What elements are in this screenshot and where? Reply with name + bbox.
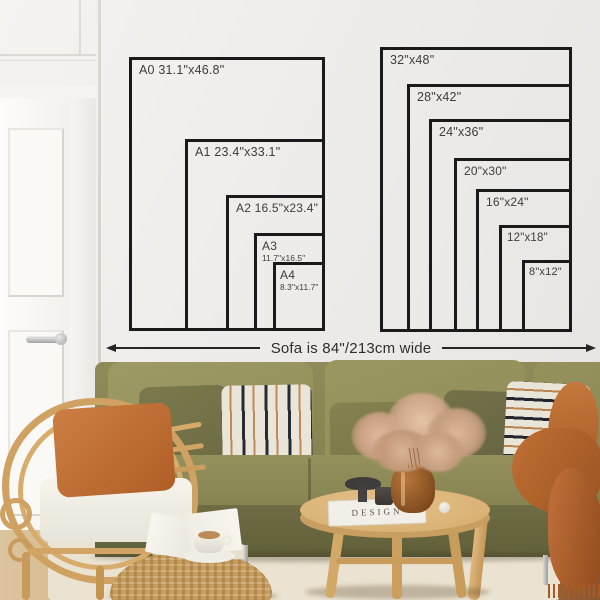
pillow-rust	[52, 402, 176, 498]
size-label-28x42: 28"x42"	[417, 91, 461, 104]
book-spine-title: DESIGN	[351, 506, 402, 518]
size-sublabel-a4: 8.3"x11.7"	[280, 283, 318, 292]
size-label-a2: A2 16.5"x23.4"	[236, 202, 318, 215]
teacup-handle	[222, 535, 232, 545]
size-label-a1: A1 23.4"x33.1"	[195, 146, 280, 159]
table-crossbar	[336, 558, 460, 564]
size-label-32x48: 32"x48"	[390, 54, 434, 67]
arrow-line-right	[442, 347, 586, 349]
teacup-coffee	[198, 531, 220, 539]
arrow-left-icon	[106, 344, 116, 352]
chair-leg	[22, 552, 30, 600]
wall-molding-line2	[0, 60, 96, 61]
bowl-pedestal-stem	[358, 487, 367, 502]
size-label-a4: A48.3"x11.7"	[280, 269, 318, 291]
size-label-a3: A311.7"x16.5"	[262, 240, 305, 262]
flower-stems	[408, 448, 420, 468]
size-box-8x12: 8"x12"	[522, 260, 572, 332]
vase-highlight	[401, 472, 405, 506]
size-label-12x18: 12"x18"	[507, 232, 548, 244]
size-label-8x12: 8"x12"	[529, 267, 562, 279]
size-label-a0: A0 31.1"x46.8"	[139, 64, 224, 77]
size-label-20x30: 20"x30"	[464, 165, 507, 178]
wall-molding-vert	[79, 0, 81, 55]
size-label-16x24: 16"x24"	[486, 196, 529, 209]
table-leg-center	[392, 535, 402, 599]
size-box-a4: A48.3"x11.7"	[273, 262, 325, 331]
chair-leg	[96, 566, 104, 600]
door-handle-rosette	[55, 333, 67, 345]
throw-blanket-drape	[548, 468, 600, 590]
throw-blanket-fringe	[548, 584, 600, 598]
decor-sphere	[439, 502, 450, 513]
arrow-right-icon	[586, 344, 596, 352]
sofa-leg-right	[543, 555, 548, 585]
sofa-width-annotation: Sofa is 84"/213cm wide	[106, 337, 596, 359]
chair-spiral	[0, 498, 32, 530]
arrow-line-left	[116, 347, 260, 349]
amber-vase	[391, 465, 435, 513]
wall-molding-line	[0, 54, 96, 56]
pillow-striped-center	[221, 384, 312, 466]
size-label-24x36: 24"x36"	[439, 126, 483, 139]
scene: A0 31.1"x46.8" A1 23.4"x33.1" A2 16.5"x2…	[0, 0, 600, 600]
door-panel-upper	[8, 128, 64, 297]
sofa-width-text: Sofa is 84"/213cm wide	[260, 340, 443, 357]
